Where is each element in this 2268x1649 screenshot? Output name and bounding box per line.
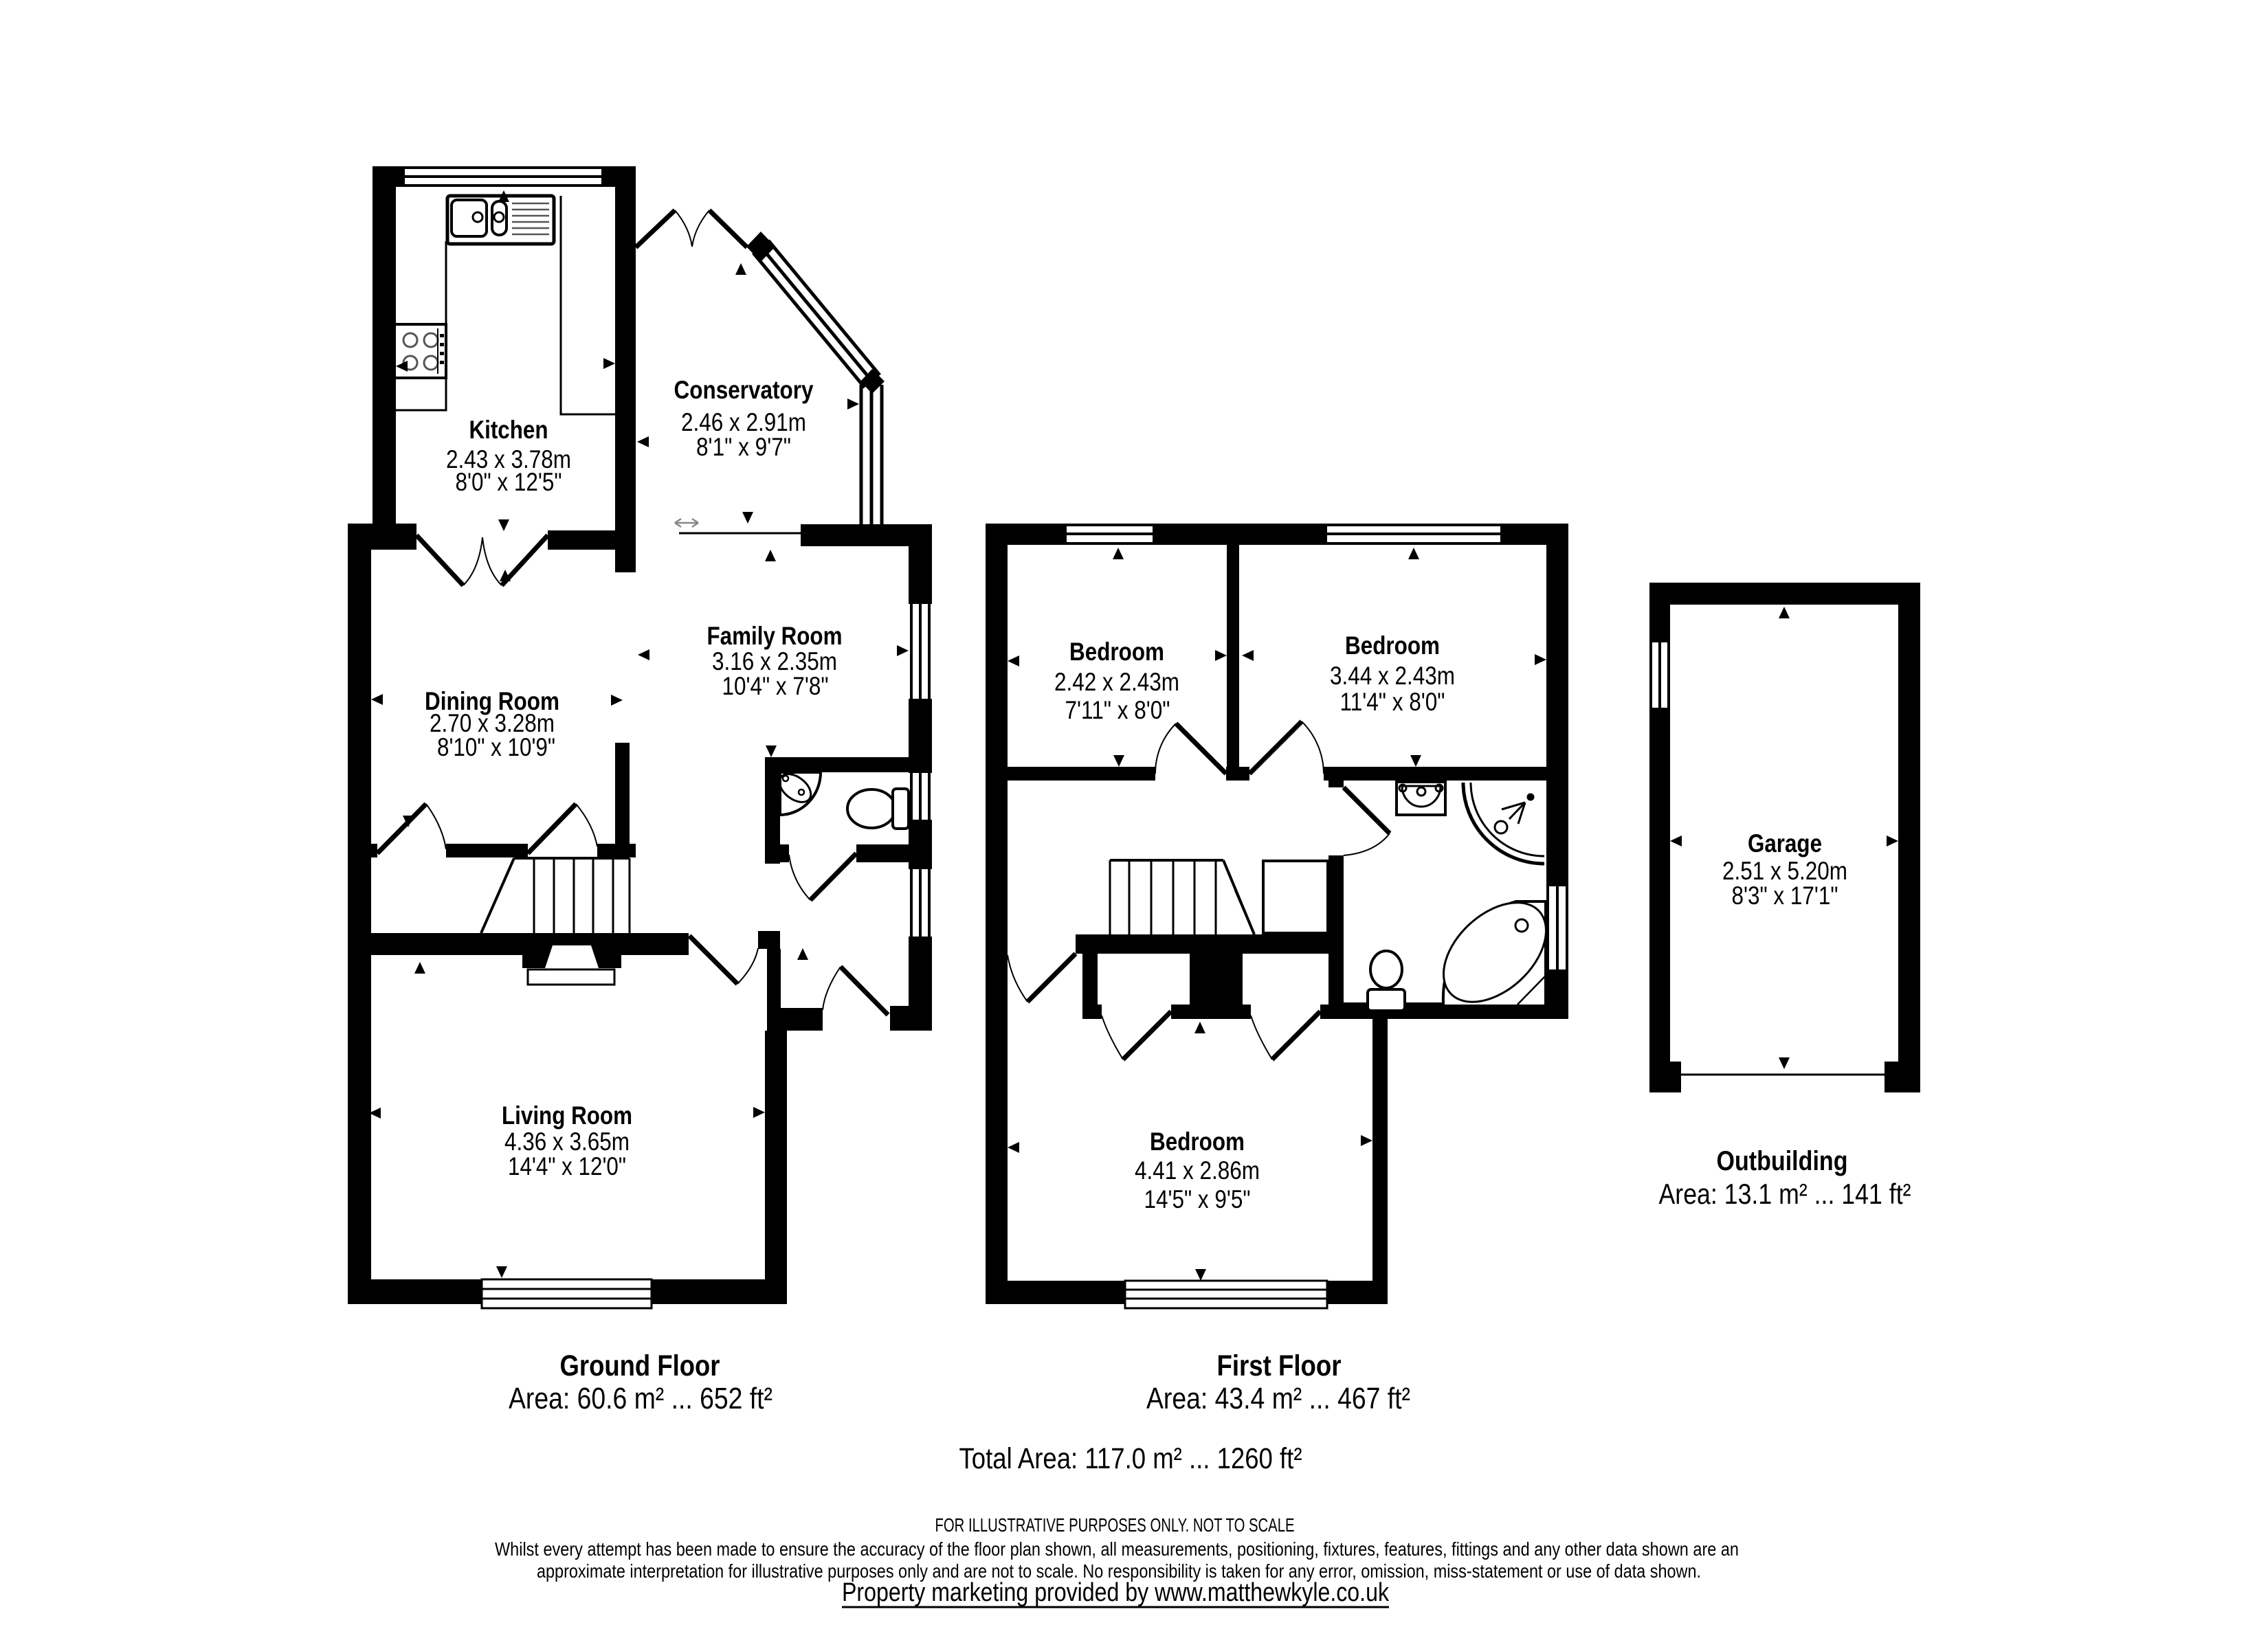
- svg-text:FOR ILLUSTRATIVE PURPOSES ONLY: FOR ILLUSTRATIVE PURPOSES ONLY. NOT TO S…: [935, 1514, 1295, 1536]
- svg-text:Total Area: 117.0 m² ... 1260: Total Area: 117.0 m² ... 1260 ft²: [959, 1442, 1302, 1475]
- svg-text:Family Room: Family Room: [707, 622, 843, 650]
- svg-text:2.46 x 2.91m: 2.46 x 2.91m: [681, 408, 806, 436]
- svg-text:Area: 43.4 m² ... 467 ft²: Area: 43.4 m² ... 467 ft²: [1146, 1382, 1410, 1415]
- svg-text:4.36 x 3.65m: 4.36 x 3.65m: [504, 1128, 630, 1156]
- svg-text:Bedroom: Bedroom: [1069, 638, 1164, 666]
- svg-text:10'4" x 7'8": 10'4" x 7'8": [722, 672, 829, 700]
- svg-text:11'4" x 8'0": 11'4" x 8'0": [1340, 688, 1445, 716]
- svg-text:First Floor: First Floor: [1217, 1349, 1342, 1382]
- svg-text:4.41 x 2.86m: 4.41 x 2.86m: [1135, 1156, 1260, 1185]
- svg-text:8'10" x 10'9": 8'10" x 10'9": [437, 733, 555, 761]
- svg-text:8'0" x 12'5": 8'0" x 12'5": [456, 468, 562, 496]
- svg-text:Whilst every attempt has been: Whilst every attempt has been made to en…: [495, 1538, 1739, 1560]
- svg-text:Outbuilding: Outbuilding: [1717, 1146, 1848, 1176]
- svg-text:Ground Floor: Ground Floor: [560, 1349, 720, 1382]
- svg-text:Bedroom: Bedroom: [1150, 1128, 1245, 1156]
- svg-text:Living Room: Living Room: [502, 1101, 632, 1130]
- svg-text:14'4" x 12'0": 14'4" x 12'0": [508, 1152, 626, 1180]
- svg-text:3.44 x 2.43m: 3.44 x 2.43m: [1330, 662, 1455, 690]
- svg-text:Conservatory: Conservatory: [674, 376, 814, 404]
- svg-text:2.51 x 5.20m: 2.51 x 5.20m: [1722, 857, 1847, 885]
- svg-text:Garage: Garage: [1748, 829, 1822, 857]
- svg-text:8'3" x 17'1": 8'3" x 17'1": [1732, 882, 1838, 910]
- svg-text:Area: 13.1 m² ... 141 ft²: Area: 13.1 m² ... 141 ft²: [1659, 1178, 1911, 1210]
- svg-text:Area: 60.6 m² ... 652 ft²: Area: 60.6 m² ... 652 ft²: [509, 1382, 772, 1415]
- svg-text:2.42 x 2.43m: 2.42 x 2.43m: [1054, 668, 1179, 696]
- svg-text:7'11" x 8'0": 7'11" x 8'0": [1065, 696, 1170, 724]
- svg-text:3.16 x 2.35m: 3.16 x 2.35m: [712, 647, 837, 675]
- svg-text:Property marketing provided by: Property marketing provided by www.matth…: [842, 1578, 1390, 1607]
- svg-text:Kitchen: Kitchen: [469, 416, 548, 444]
- svg-text:Bedroom: Bedroom: [1345, 631, 1440, 660]
- svg-text:8'1" x 9'7": 8'1" x 9'7": [696, 433, 791, 461]
- svg-text:14'5" x 9'5": 14'5" x 9'5": [1144, 1185, 1251, 1213]
